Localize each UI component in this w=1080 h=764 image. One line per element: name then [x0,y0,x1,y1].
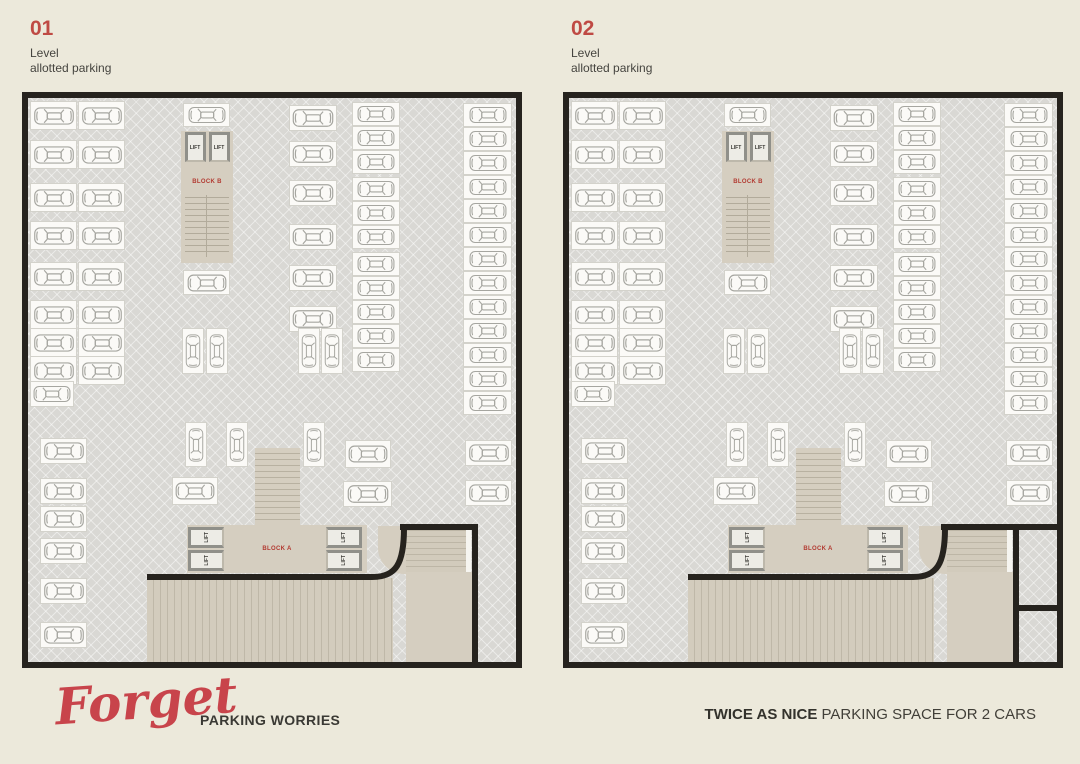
car-icon [846,424,864,465]
car-icon [465,225,510,245]
car-icon [208,330,226,372]
parking-spot [1004,175,1053,199]
car-icon [354,326,398,346]
parking-spot [893,252,941,276]
car-icon [354,227,398,247]
car-icon [80,264,123,289]
car-icon [174,479,216,503]
level-1-number: 01 [30,18,111,39]
parking-spot [463,367,512,391]
parking-spot [352,126,400,150]
parking-spot [1004,271,1053,295]
car-icon [465,129,510,149]
car-icon [895,227,939,247]
car-icon [583,480,626,502]
car-icon [1006,153,1051,173]
car-icon [80,330,123,355]
parking-spot [619,183,666,212]
car-icon [1008,482,1051,504]
parking-spot [619,300,666,329]
car-icon [832,107,876,129]
parking-spot [343,481,392,507]
block-b-building: LIFT LIFT BLOCK B [181,131,233,263]
block-a-stairs [255,448,300,525]
parking-spot [571,183,618,212]
parking-spot [463,199,512,223]
car-icon [32,103,75,128]
parking-spot [345,440,391,468]
block-b-lifts: LIFT LIFT [181,131,233,165]
car-icon [621,103,664,128]
parking-spot [463,175,512,199]
ramp-curve-fill [919,526,949,574]
car-icon [583,540,626,562]
parking-spot [183,270,230,295]
car-icon [888,442,930,466]
car-icon [291,143,335,165]
parking-spot [893,201,941,225]
car-icon [1006,201,1051,221]
car-icon [354,128,398,148]
block-a-stairs [796,448,841,525]
parking-spot [839,328,861,374]
lift-shaft: LIFT [867,527,903,548]
car-icon [895,254,939,274]
parking-spot [30,140,77,169]
car-icon [573,103,616,128]
car-icon [1006,369,1051,389]
parking-spot [581,538,628,564]
parking-spot [1004,391,1053,415]
car-icon [832,182,876,204]
floor-plan-level-1: LIFT LIFT BLOCK B LIFT LIFT BLOCK A LIFT… [22,92,522,668]
parking-spot [723,328,745,374]
car-icon [80,358,123,383]
parking-spot [172,477,218,505]
car-icon [832,267,876,289]
car-icon [32,383,72,405]
parking-spot [893,348,941,372]
parking-spot [830,265,878,291]
car-icon [621,330,664,355]
car-icon [32,264,75,289]
block-b-stairs [185,195,229,257]
car-icon [621,264,664,289]
ramp-curve-fill [378,526,408,574]
parking-spot [30,328,77,357]
block-a-lifts-right: LIFT LIFT [867,525,907,573]
parking-spot [1004,127,1053,151]
parking-spot [886,440,932,468]
parking-spot [619,356,666,385]
parking-spot [352,177,400,201]
lift-shaft: LIFT [326,527,362,548]
car-icon [621,185,664,210]
block-b-building: LIFT LIFT BLOCK B [722,131,774,263]
parking-spot [352,201,400,225]
car-icon [583,580,626,602]
car-icon [832,226,876,248]
lift-shaft: LIFT [729,527,765,548]
parking-spot [463,271,512,295]
parking-spot [619,221,666,250]
parking-spot [30,101,77,130]
car-icon [80,185,123,210]
parking-spot [40,578,87,604]
lift-shaft: LIFT [867,550,903,571]
car-icon [725,330,743,372]
parking-spot [78,300,125,329]
level-1-caption: Level allotted parking [30,46,111,76]
car-icon [80,103,123,128]
parking-spot [1006,440,1053,466]
car-icon [291,107,335,129]
car-icon [465,321,510,341]
block-b-label: BLOCK B [181,179,233,185]
parking-spot [1004,319,1053,343]
car-icon [32,185,75,210]
car-icon [32,330,75,355]
parking-spot [352,300,400,324]
parking-spot [30,381,74,407]
parking-spot [581,478,628,504]
footer-left-caption: PARKING WORRIES [200,712,340,728]
parking-spot [767,422,789,467]
parking-spot [571,328,618,357]
car-icon [42,540,85,562]
floor-plan-level-2: LIFT LIFT BLOCK B LIFT LIFT BLOCK A LIFT… [563,92,1063,668]
ramp-divider [1007,529,1012,572]
parking-spot [893,102,941,126]
parking-spot [463,391,512,415]
car-icon [42,624,85,646]
car-icon [185,272,228,293]
car-icon [895,278,939,298]
lift-shaft: LIFT [209,132,230,162]
parking-spot [893,150,941,174]
parking-spot [78,262,125,291]
parking-spot [78,328,125,357]
parking-spot [185,422,207,467]
car-icon [354,179,398,199]
parking-spot [884,481,933,507]
parking-spot [571,140,618,169]
block-a-building: LIFT LIFT BLOCK A LIFT LIFT [728,525,908,573]
car-icon [291,226,335,248]
parking-spot [78,356,125,385]
footer-right-bold: TWICE AS NICE [705,706,818,723]
parking-spot [352,225,400,249]
parking-spot [581,622,628,648]
parking-spot [289,141,337,167]
lift-shaft: LIFT [726,132,747,162]
car-icon [715,479,757,503]
car-icon [573,185,616,210]
parking-spot [40,478,87,504]
level-1-header: 01 Level allotted parking [30,18,111,76]
parking-spot [206,328,228,374]
parking-spot [352,150,400,174]
parking-spot [619,140,666,169]
car-icon [749,330,767,372]
parking-spot [893,276,941,300]
car-icon [185,105,228,125]
block-b-stairs [726,195,770,257]
car-icon [573,302,616,327]
parking-spot [581,506,628,532]
car-icon [354,152,398,172]
car-icon [465,297,510,317]
parking-spot [40,438,87,464]
car-icon [80,223,123,248]
parking-spot [713,477,759,505]
car-icon [573,264,616,289]
ramp-divider [466,529,471,572]
car-icon [1006,345,1051,365]
car-icon [895,302,939,322]
parking-spot [1004,199,1053,223]
parking-spot [893,324,941,348]
car-icon [465,273,510,293]
parking-spot [463,223,512,247]
car-icon [354,203,398,223]
parking-spot [862,328,884,374]
car-icon [621,302,664,327]
car-icon [895,152,939,172]
car-icon [354,350,398,370]
car-icon [583,440,626,462]
parking-spot [893,177,941,201]
parking-spot [830,105,878,131]
car-icon [465,177,510,197]
parking-spot [463,151,512,175]
ramp-area [947,572,1016,662]
parking-spot [463,127,512,151]
parking-spot [289,105,337,131]
parking-spot [747,328,769,374]
lift-shaft: LIFT [188,527,224,548]
parking-spot [1004,223,1053,247]
car-icon [573,330,616,355]
car-icon [1006,249,1051,269]
car-icon [354,302,398,322]
footer-right-rest: PARKING SPACE FOR 2 CARS [817,706,1036,723]
parking-spot [298,328,320,374]
parking-spot [893,225,941,249]
brochure-page: { "levels": [ {"number": "01", "line1": … [0,0,1080,764]
car-icon [895,128,939,148]
level-2-caption: Level allotted parking [571,46,652,76]
driveway-hatch [688,578,934,662]
car-icon [300,330,318,372]
parking-spot [463,319,512,343]
car-icon [184,330,202,372]
car-icon [726,272,769,293]
parking-spot [1004,343,1053,367]
car-icon [32,358,75,383]
lift-shaft: LIFT [326,550,362,571]
parking-spot [463,343,512,367]
parking-spot [724,103,771,127]
lift-shaft: LIFT [188,550,224,571]
parking-spot [289,265,337,291]
car-icon [832,308,876,330]
parking-spot [893,300,941,324]
car-icon [1006,177,1051,197]
ramp-treads [406,527,466,572]
block-a-lifts-right: LIFT LIFT [326,525,366,573]
parking-spot [463,295,512,319]
car-icon [583,624,626,646]
parking-spot [352,348,400,372]
car-icon [895,350,939,370]
parking-spot [463,247,512,271]
parking-spot [30,221,77,250]
car-icon [465,249,510,269]
parking-spot [830,224,878,250]
parking-spot [893,126,941,150]
parking-spot [352,276,400,300]
car-icon [1008,442,1051,464]
parking-spot [352,324,400,348]
parking-spot [40,622,87,648]
ramp-treads [947,527,1007,572]
car-icon [886,483,931,505]
level-2-number: 02 [571,18,652,39]
parking-spot [830,180,878,206]
car-icon [895,326,939,346]
parking-spot [1004,151,1053,175]
car-icon [323,330,341,372]
car-icon [467,482,510,504]
car-icon [467,442,510,464]
parking-spot [183,103,230,127]
block-a-building: LIFT LIFT BLOCK A LIFT LIFT [187,525,367,573]
car-icon [465,393,510,413]
level-2-header: 02 Level allotted parking [571,18,652,76]
car-icon [42,580,85,602]
car-icon [32,142,75,167]
ramp-area [406,572,475,662]
parking-spot [30,300,77,329]
car-icon [32,223,75,248]
car-icon [769,424,787,465]
parking-spot [1004,295,1053,319]
parking-spot [40,506,87,532]
car-icon [354,278,398,298]
car-icon [42,508,85,530]
car-icon [228,424,246,465]
car-icon [305,424,323,465]
parking-spot [571,300,618,329]
parking-spot [463,103,512,127]
car-icon [291,267,335,289]
parking-spot [581,578,628,604]
block-b-lifts: LIFT LIFT [722,131,774,165]
parking-spot [581,438,628,464]
car-icon [621,358,664,383]
car-icon [573,383,613,405]
parking-spot [844,422,866,467]
car-icon [1006,225,1051,245]
car-icon [465,345,510,365]
car-icon [864,330,882,372]
lift-shaft: LIFT [729,550,765,571]
parking-spot [289,180,337,206]
parking-spot [619,101,666,130]
parking-spot [724,270,771,295]
parking-spot [1004,103,1053,127]
car-icon [726,105,769,125]
parking-spot [78,101,125,130]
car-icon [1006,273,1051,293]
parking-spot [1006,480,1053,506]
car-icon [895,203,939,223]
car-icon [465,153,510,173]
parking-spot [352,102,400,126]
parking-spot [303,422,325,467]
lift-shaft: LIFT [750,132,771,162]
car-icon [832,143,876,165]
car-icon [42,480,85,502]
parking-spot [78,140,125,169]
parking-spot [571,221,618,250]
car-icon [354,254,398,274]
parking-spot [619,328,666,357]
parking-spot [352,252,400,276]
car-icon [42,440,85,462]
car-icon [291,182,335,204]
parking-spot [78,221,125,250]
car-icon [573,142,616,167]
car-icon [621,223,664,248]
block-b-label: BLOCK B [722,179,774,185]
car-icon [573,223,616,248]
lift-shaft: LIFT [185,132,206,162]
car-icon [573,358,616,383]
parking-spot [182,328,204,374]
car-icon [32,302,75,327]
parking-spot [830,141,878,167]
car-icon [1006,129,1051,149]
car-icon [621,142,664,167]
car-icon [345,483,390,505]
car-icon [465,201,510,221]
parking-spot [1004,367,1053,391]
parking-spot [30,262,77,291]
car-icon [465,105,510,125]
car-icon [80,142,123,167]
parking-spot [571,262,618,291]
car-icon [354,104,398,124]
parking-spot [30,183,77,212]
parking-spot [619,262,666,291]
parking-spot [465,480,512,506]
parking-spot [571,101,618,130]
car-icon [1006,321,1051,341]
parking-spot [726,422,748,467]
parking-spot [321,328,343,374]
car-icon [1006,105,1051,125]
car-icon [465,369,510,389]
car-icon [895,179,939,199]
car-icon [728,424,746,465]
car-icon [291,308,335,330]
car-icon [187,424,205,465]
driveway-hatch [147,578,393,662]
car-icon [895,104,939,124]
car-icon [1006,393,1051,413]
